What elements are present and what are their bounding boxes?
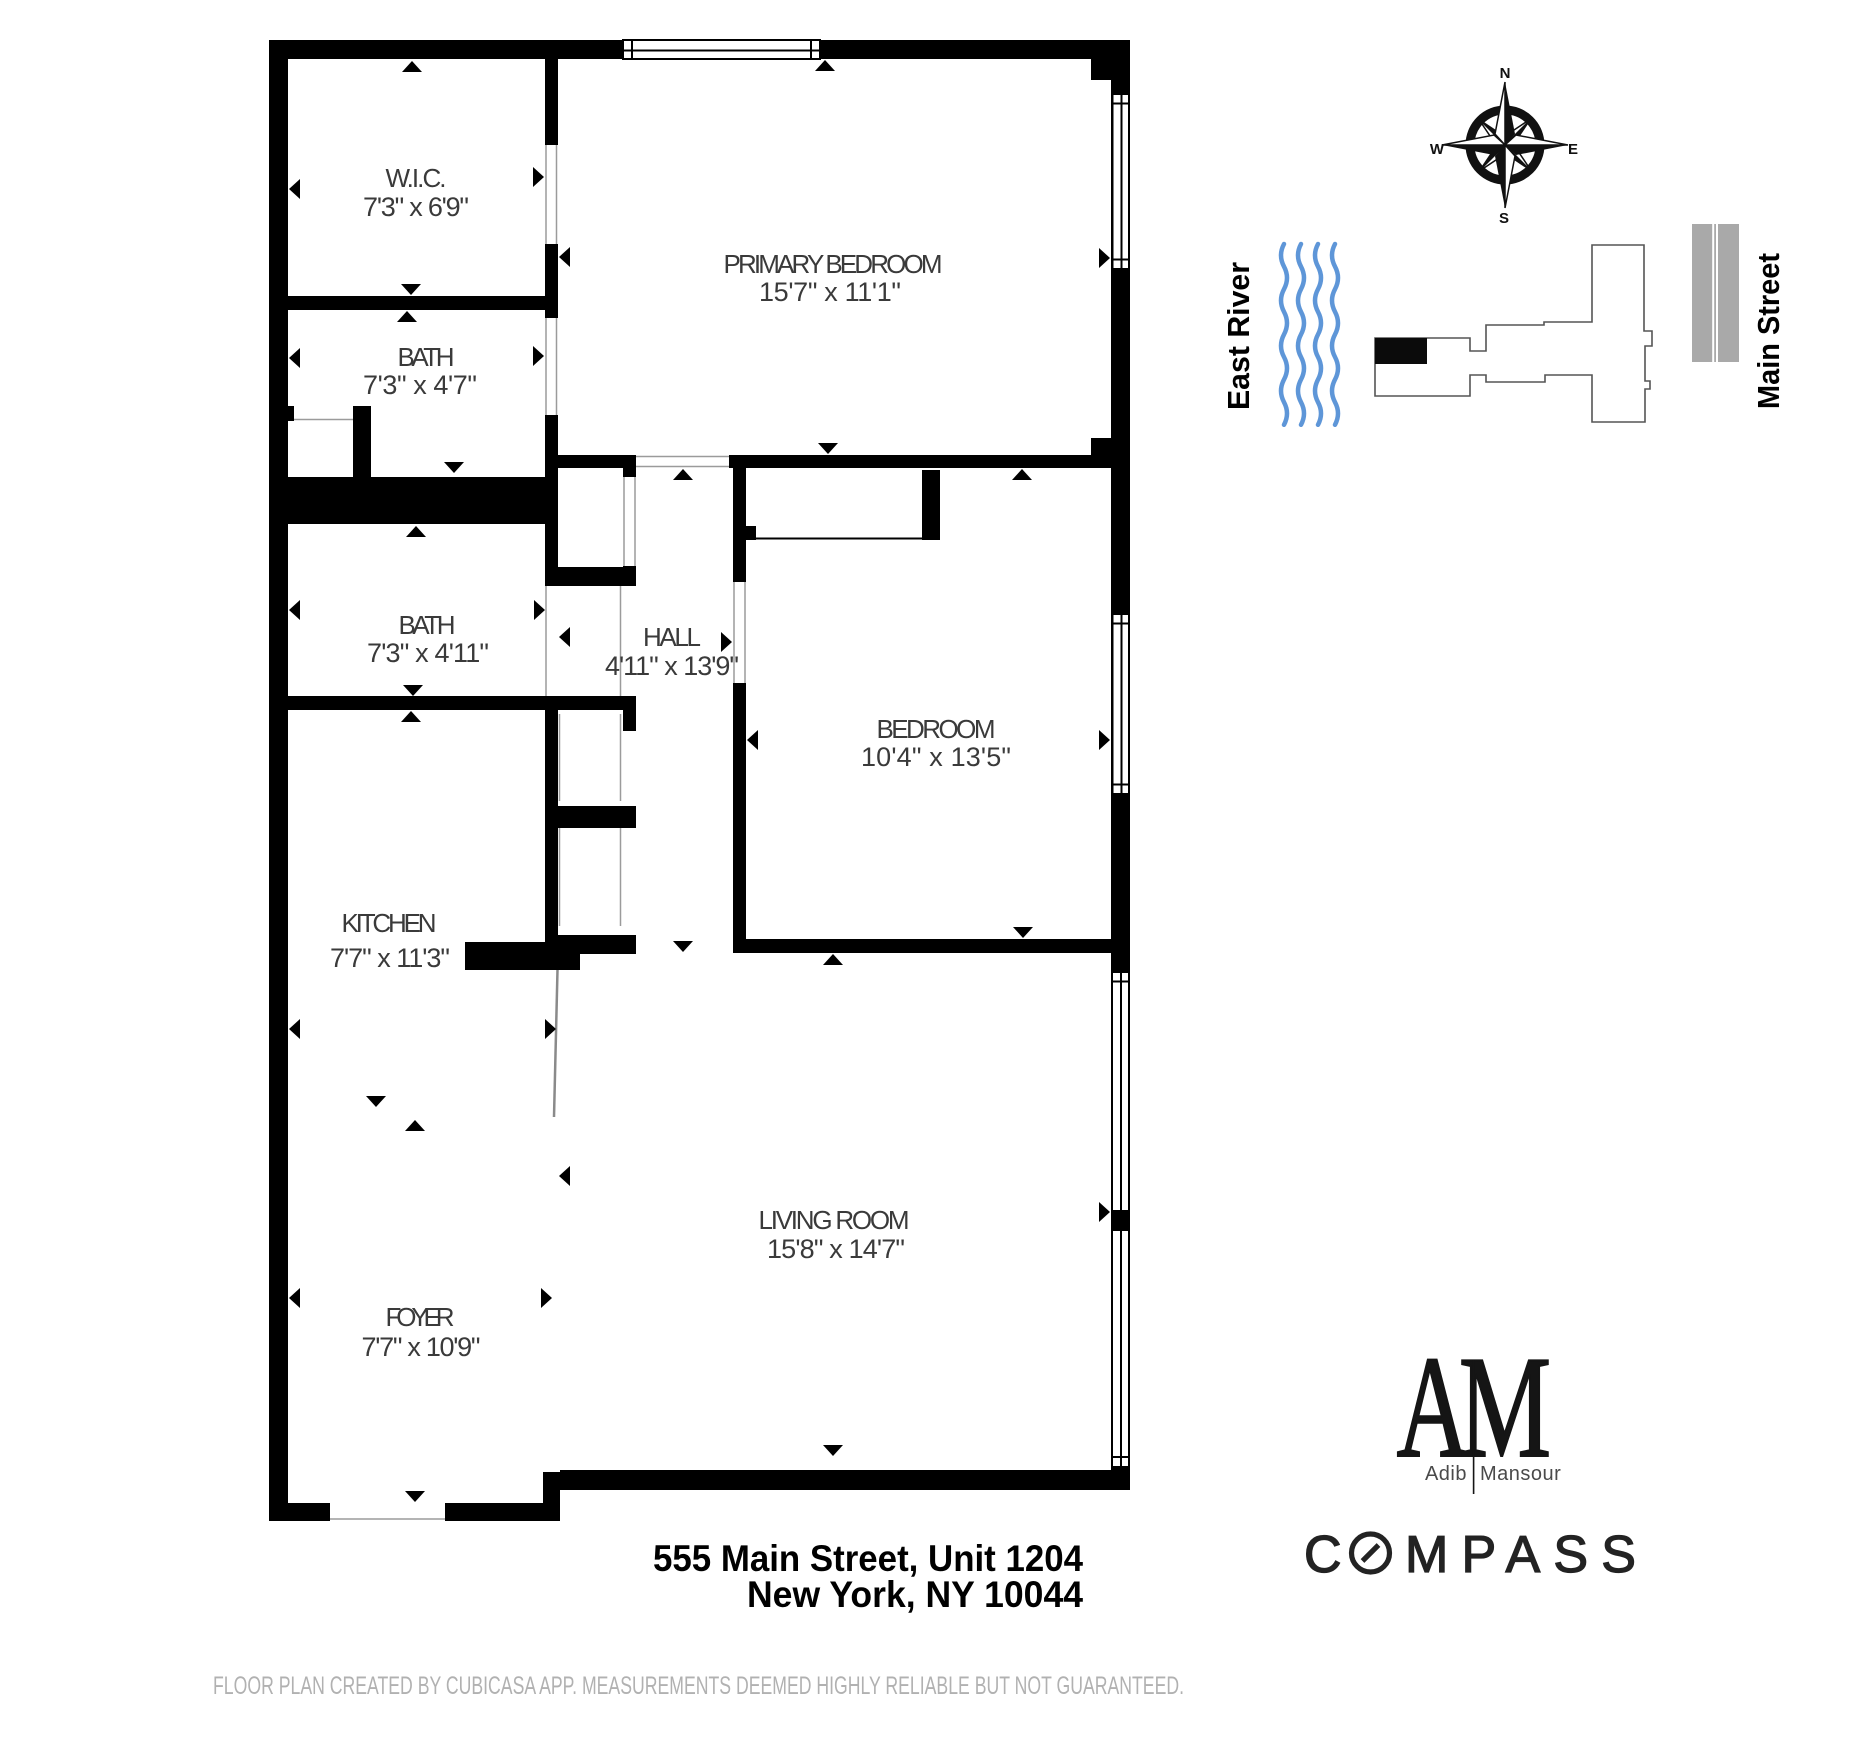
- svg-text:7'3" x 6'9": 7'3" x 6'9": [363, 192, 469, 222]
- svg-text:PRIMARY BEDROOM: PRIMARY BEDROOM: [724, 249, 943, 279]
- svg-text:4'11" x 13'9": 4'11" x 13'9": [605, 651, 739, 681]
- svg-text:E: E: [1568, 141, 1578, 158]
- svg-text:FLOOR PLAN CREATED BY CUBICASA: FLOOR PLAN CREATED BY CUBICASA APP. MEAS…: [213, 1672, 1184, 1700]
- svg-text:Main Street: Main Street: [1751, 253, 1786, 409]
- svg-text:W.I.C.: W.I.C.: [386, 163, 447, 193]
- svg-text:HALL: HALL: [643, 622, 701, 652]
- svg-text:S: S: [1499, 210, 1509, 227]
- svg-text:BATH: BATH: [398, 342, 455, 372]
- svg-text:KITCHEN: KITCHEN: [342, 908, 437, 938]
- svg-text:10'4" x 13'5": 10'4" x 13'5": [861, 742, 1011, 772]
- svg-text:555 Main Street, Unit 1204: 555 Main Street, Unit 1204: [653, 1538, 1083, 1579]
- svg-text:7'7" x 11'3": 7'7" x 11'3": [330, 943, 450, 973]
- svg-text:BATH: BATH: [399, 610, 456, 640]
- svg-text:7'7" x 10'9": 7'7" x 10'9": [362, 1332, 481, 1362]
- svg-text:FOYER: FOYER: [386, 1302, 455, 1332]
- svg-text:New York, NY 10044: New York, NY 10044: [747, 1574, 1083, 1615]
- svg-text:N: N: [1500, 65, 1511, 82]
- svg-text:Adib: Adib: [1425, 1463, 1467, 1485]
- svg-text:LIVING ROOM: LIVING ROOM: [759, 1205, 910, 1235]
- svg-text:15'7" x 11'1": 15'7" x 11'1": [759, 277, 901, 307]
- svg-text:C: C: [1304, 1526, 1342, 1584]
- svg-text:East River: East River: [1221, 262, 1256, 410]
- svg-text:15'8" x 14'7": 15'8" x 14'7": [767, 1234, 905, 1264]
- svg-text:W: W: [1430, 141, 1445, 158]
- svg-text:Mansour: Mansour: [1480, 1463, 1561, 1485]
- svg-text:7'3" x 4'7": 7'3" x 4'7": [363, 370, 477, 400]
- svg-text:MPASS: MPASS: [1405, 1526, 1649, 1584]
- svg-text:BEDROOM: BEDROOM: [877, 714, 996, 744]
- svg-text:7'3" x 4'11": 7'3" x 4'11": [367, 638, 489, 668]
